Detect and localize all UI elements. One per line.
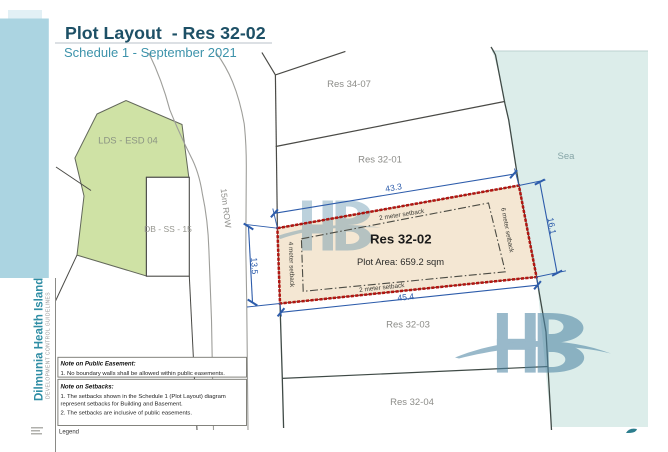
- svg-text:DB - SS - 15: DB - SS - 15: [144, 224, 192, 234]
- svg-text:Sea: Sea: [558, 151, 576, 162]
- svg-text:Legend: Legend: [59, 430, 79, 436]
- svg-text:Plot Area: 659.2 sqm: Plot Area: 659.2 sqm: [357, 256, 444, 267]
- svg-text:Note on Setbacks:: Note on Setbacks:: [61, 384, 114, 391]
- svg-text:Schedule 1 - September 2021: Schedule 1 - September 2021: [64, 45, 237, 60]
- svg-text:1. The setbacks shown in the S: 1. The setbacks shown in the Schedule 1 …: [61, 394, 226, 400]
- svg-text:1. No boundary walls shall be: 1. No boundary walls shall be allowed wi…: [61, 371, 226, 377]
- svg-text:LDS - ESD 04: LDS - ESD 04: [98, 136, 158, 147]
- svg-text:Res 32-01: Res 32-01: [358, 155, 402, 166]
- svg-text:Dilmunia Health Island: Dilmunia Health Island: [34, 278, 46, 401]
- svg-text:45.4: 45.4: [397, 291, 415, 303]
- svg-text:Plot Layout - Res 32-02: Plot Layout - Res 32-02: [65, 23, 266, 43]
- svg-text:represent setbacks for Buildin: represent setbacks for Building and Base…: [61, 402, 183, 408]
- svg-text:Res 32-03: Res 32-03: [386, 320, 430, 331]
- svg-text:Res 34-07: Res 34-07: [327, 79, 371, 90]
- svg-text:Res 32-04: Res 32-04: [390, 397, 434, 408]
- svg-text:DEVELOPMENT CONTROL GUIDELINES: DEVELOPMENT CONTROL GUIDELINES: [46, 292, 52, 399]
- svg-text:Res 32-02: Res 32-02: [370, 232, 432, 247]
- svg-text:13.5: 13.5: [249, 257, 260, 274]
- svg-text:Note on Public Easement:: Note on Public Easement:: [61, 361, 136, 368]
- svg-text:2. The setbacks are inclusive: 2. The setbacks are inclusive of public …: [61, 411, 193, 417]
